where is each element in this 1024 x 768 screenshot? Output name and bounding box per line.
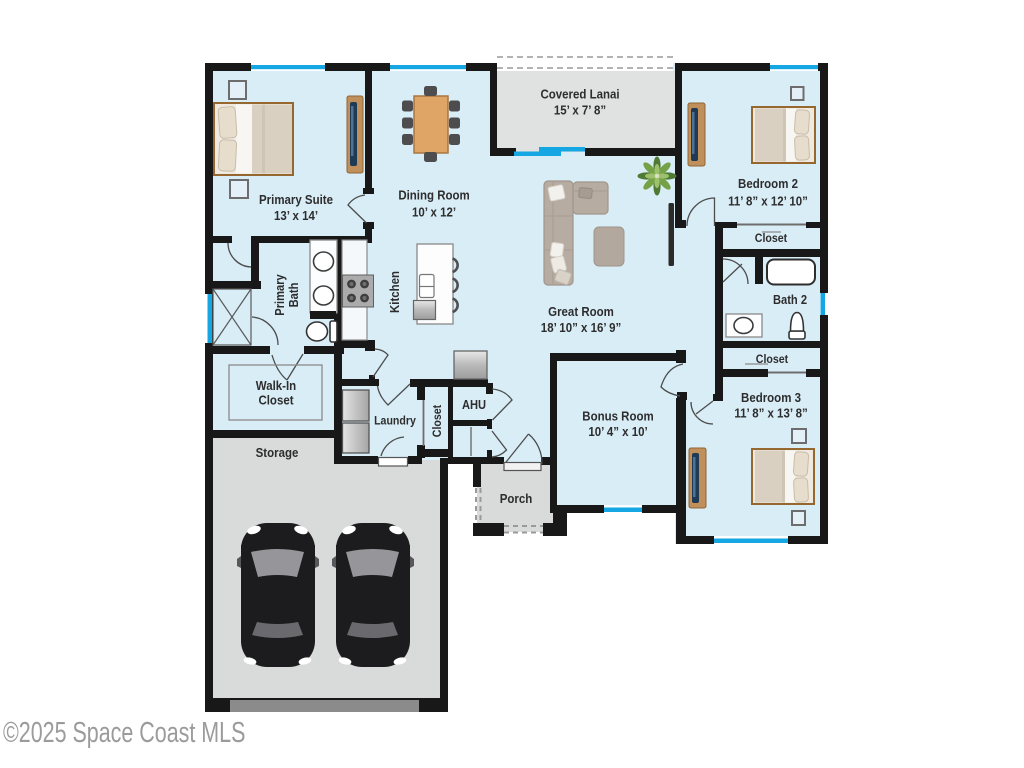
svg-text:Bedroom 3: Bedroom 3 [741,390,801,405]
svg-text:11’ 8” x 12’ 10”: 11’ 8” x 12’ 10” [728,194,808,209]
svg-text:Great Room: Great Room [548,304,614,319]
svg-text:13’ x 14’: 13’ x 14’ [274,208,318,223]
svg-text:AHU: AHU [462,397,486,412]
svg-text:Storage: Storage [256,445,299,460]
svg-text:Porch: Porch [500,491,533,506]
svg-text:Closet: Closet [258,393,293,408]
svg-text:Kitchen: Kitchen [387,271,402,313]
svg-text:Primary Suite: Primary Suite [259,192,333,207]
svg-text:Dining Room: Dining Room [398,188,469,203]
svg-text:Bonus Room: Bonus Room [582,409,653,424]
svg-text:Bedroom 2: Bedroom 2 [738,176,798,191]
svg-text:10’ x 12’: 10’ x 12’ [412,205,456,220]
svg-text:Walk-In: Walk-In [256,378,296,393]
svg-text:18’ 10” x 16’ 9”: 18’ 10” x 16’ 9” [541,320,621,335]
svg-text:Primary: Primary [272,274,287,316]
svg-text:Bath 2: Bath 2 [773,292,807,307]
svg-text:Closet: Closet [755,232,788,245]
svg-text:10’ 4” x 10’: 10’ 4” x 10’ [588,424,647,439]
svg-text:©2025 Space Coast MLS: ©2025 Space Coast MLS [3,717,245,749]
svg-text:15’ x 7’ 8”: 15’ x 7’ 8” [554,103,606,118]
svg-text:Closet: Closet [431,405,444,438]
svg-text:Laundry: Laundry [374,415,416,428]
svg-text:Covered Lanai: Covered Lanai [540,87,619,102]
svg-text:Closet: Closet [756,353,789,366]
svg-text:Bath: Bath [286,283,301,308]
svg-text:11’ 8” x 13’ 8”: 11’ 8” x 13’ 8” [734,406,807,421]
